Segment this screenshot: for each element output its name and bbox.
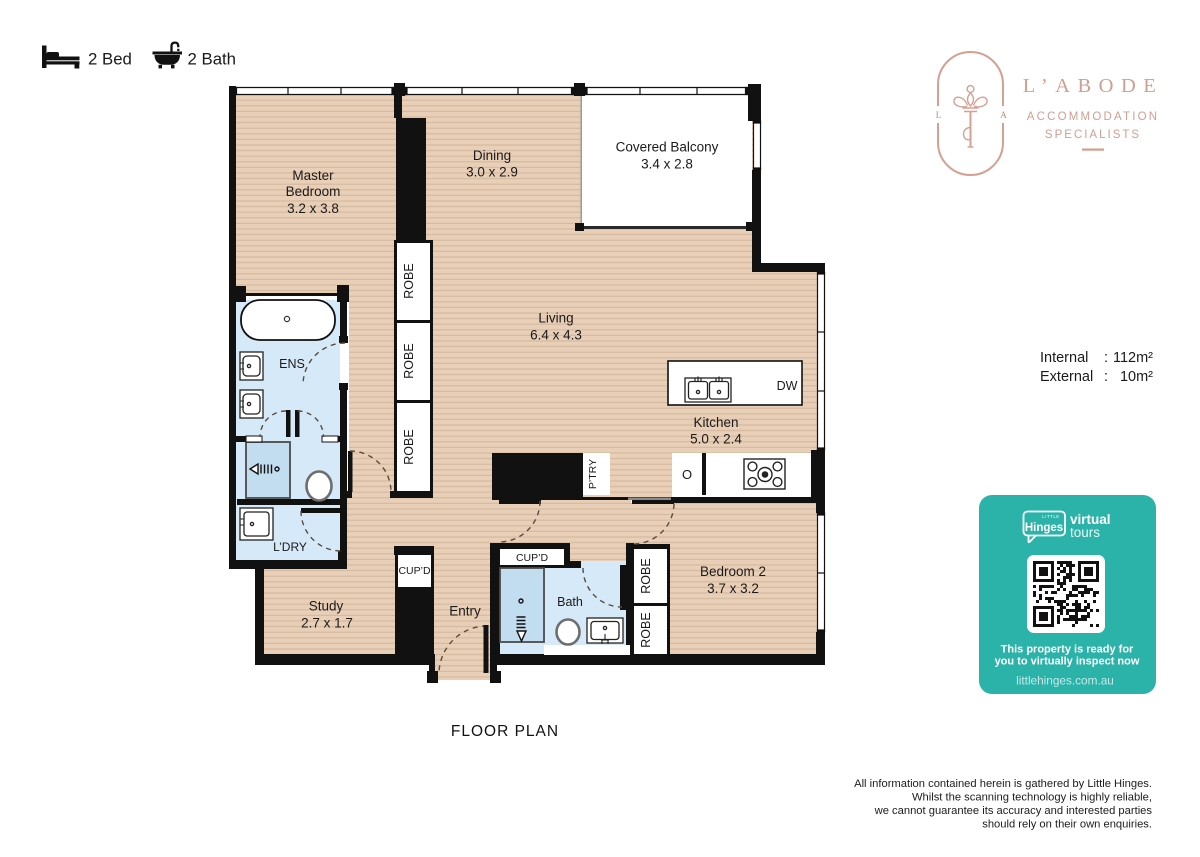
svg-text:ENS: ENS (279, 357, 305, 371)
svg-text:ROBE: ROBE (639, 612, 653, 647)
svg-text:L’DRY: L’DRY (273, 540, 307, 554)
svg-text:Kitchen: Kitchen (693, 415, 738, 430)
svg-text:CUP’D: CUP’D (398, 565, 431, 577)
svg-text:3.4 x 2.8: 3.4 x 2.8 (641, 157, 693, 172)
svg-text:Bedroom: Bedroom (286, 184, 341, 199)
svg-text:3.7 x 3.2: 3.7 x 3.2 (707, 581, 759, 596)
svg-text:CUP’D: CUP’D (516, 552, 549, 564)
svg-text:Master: Master (292, 168, 334, 183)
svg-text:FLOOR PLAN: FLOOR PLAN (451, 723, 559, 740)
svg-text:SPECIALISTS: SPECIALISTS (1045, 129, 1141, 141)
svg-text:Living: Living (538, 311, 573, 326)
svg-text:should rely on their own enqui: should rely on their own enquiries. (982, 819, 1152, 831)
svg-text:2 Bath: 2 Bath (188, 50, 237, 69)
svg-text:3.2 x 3.8: 3.2 x 3.8 (287, 201, 339, 216)
svg-text::: : (1104, 350, 1108, 366)
svg-text:ACCOMMODATION: ACCOMMODATION (1027, 111, 1160, 123)
svg-text:2 Bed: 2 Bed (88, 50, 132, 69)
svg-text:tours: tours (1070, 525, 1100, 540)
svg-text:Internal: Internal (1040, 350, 1088, 366)
svg-text:L’ABODE: L’ABODE (1023, 75, 1164, 97)
svg-text:Hinges: Hinges (1025, 522, 1063, 534)
svg-text:littlehinges.com.au: littlehinges.com.au (1016, 674, 1114, 688)
svg-text:10m²: 10m² (1120, 369, 1153, 385)
svg-text:2.7 x 1.7: 2.7 x 1.7 (301, 616, 353, 631)
svg-text:5.0 x 2.4: 5.0 x 2.4 (690, 432, 742, 447)
svg-text:ROBE: ROBE (639, 558, 653, 593)
svg-text:Covered Balcony: Covered Balcony (616, 140, 719, 155)
svg-text:Whilst the scanning technology: Whilst the scanning technology is highly… (912, 792, 1152, 804)
svg-text:O: O (682, 467, 692, 482)
svg-text:This property is ready for: This property is ready for (1001, 644, 1134, 656)
svg-text:ROBE: ROBE (402, 429, 416, 464)
svg-text:3.0 x 2.9: 3.0 x 2.9 (466, 165, 518, 180)
svg-text::: : (1104, 369, 1108, 385)
svg-text:A: A (1000, 110, 1007, 120)
svg-text:All information contained here: All information contained herein is gath… (854, 778, 1152, 790)
svg-text:Bedroom 2: Bedroom 2 (700, 564, 766, 579)
svg-text:112m²: 112m² (1113, 350, 1153, 366)
svg-text:ROBE: ROBE (402, 263, 416, 298)
svg-text:L: L (936, 110, 942, 120)
svg-text:DW: DW (777, 379, 798, 393)
svg-text:ROBE: ROBE (402, 343, 416, 378)
svg-text:6.4 x 4.3: 6.4 x 4.3 (530, 328, 582, 343)
svg-text:Entry: Entry (449, 604, 481, 619)
svg-text:External: External (1040, 369, 1093, 385)
svg-text:Dining: Dining (473, 148, 511, 163)
svg-text:P’TRY: P’TRY (587, 459, 599, 489)
svg-text:we cannot guarantee its accura: we cannot guarantee its accuracy and int… (874, 805, 1153, 817)
svg-text:Study: Study (309, 599, 344, 614)
svg-text:you to virtually inspect now: you to virtually inspect now (995, 656, 1140, 668)
svg-text:Bath: Bath (557, 595, 583, 609)
svg-text:LITTLE: LITTLE (1042, 514, 1059, 519)
